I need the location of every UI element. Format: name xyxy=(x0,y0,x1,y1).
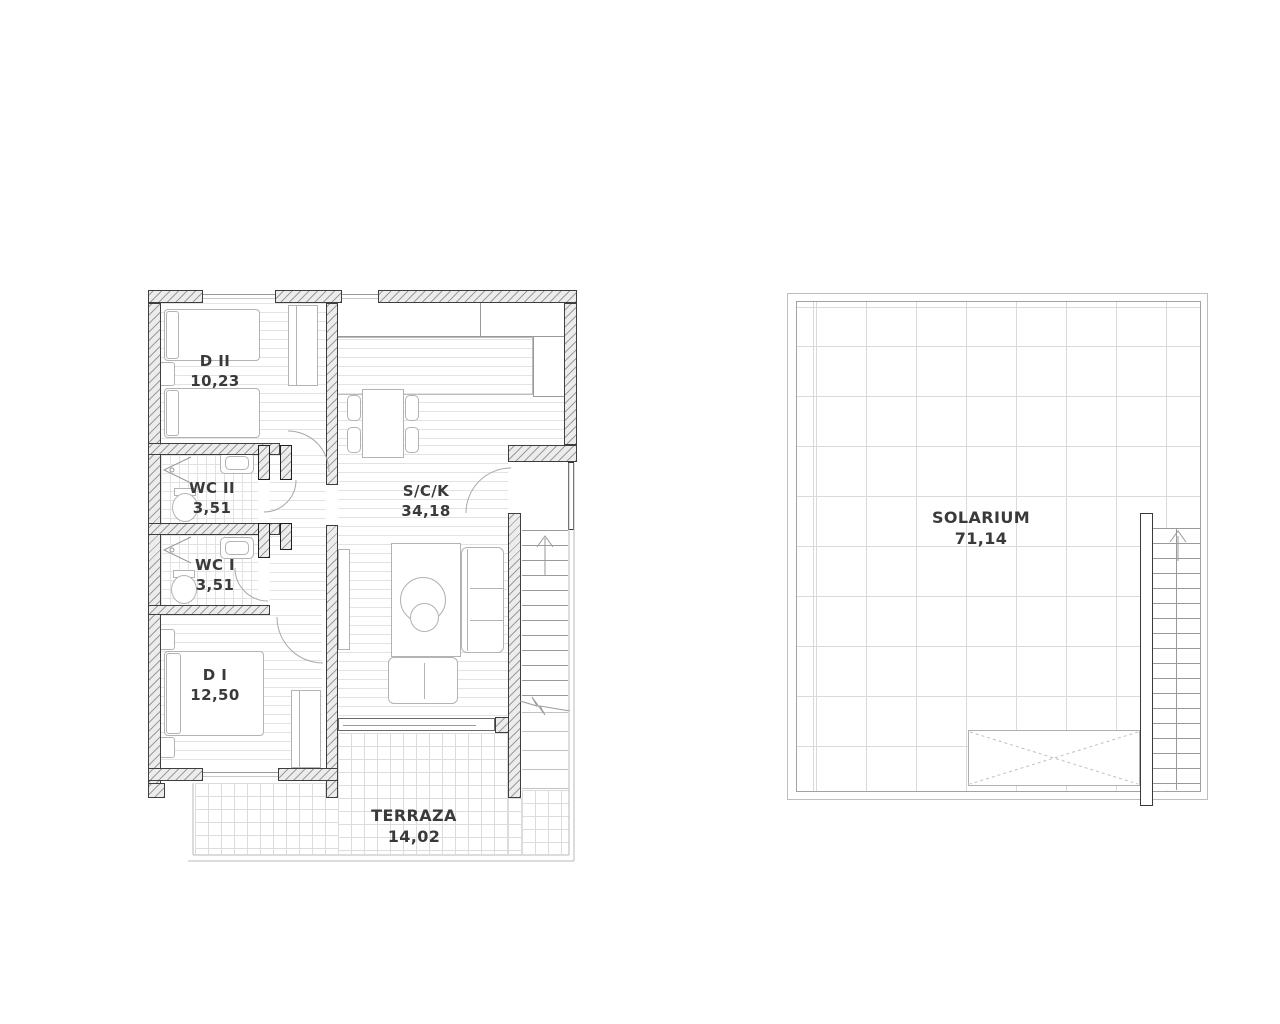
plan-annotations xyxy=(0,0,1280,1024)
door-arc-icon xyxy=(277,617,323,663)
shower-head-icon xyxy=(170,468,174,472)
up-arrow-icon xyxy=(537,536,553,576)
up-arrow-icon xyxy=(1170,531,1186,561)
pergola-x-icon xyxy=(970,732,1138,784)
break-line-icon xyxy=(520,697,570,715)
shower-icon xyxy=(164,537,191,563)
shower-icon xyxy=(164,457,191,483)
door-arc-icon xyxy=(264,480,296,512)
door-arc-icon xyxy=(235,568,268,601)
door-arc-icon xyxy=(288,431,329,472)
shower-head-icon xyxy=(170,548,174,552)
door-arc-icon xyxy=(466,468,511,513)
floor-plan-canvas: D II 10,23 WC II 3,51 WC I 3,51 D I 12,5… xyxy=(0,0,1280,1024)
terrace-border xyxy=(188,463,574,861)
